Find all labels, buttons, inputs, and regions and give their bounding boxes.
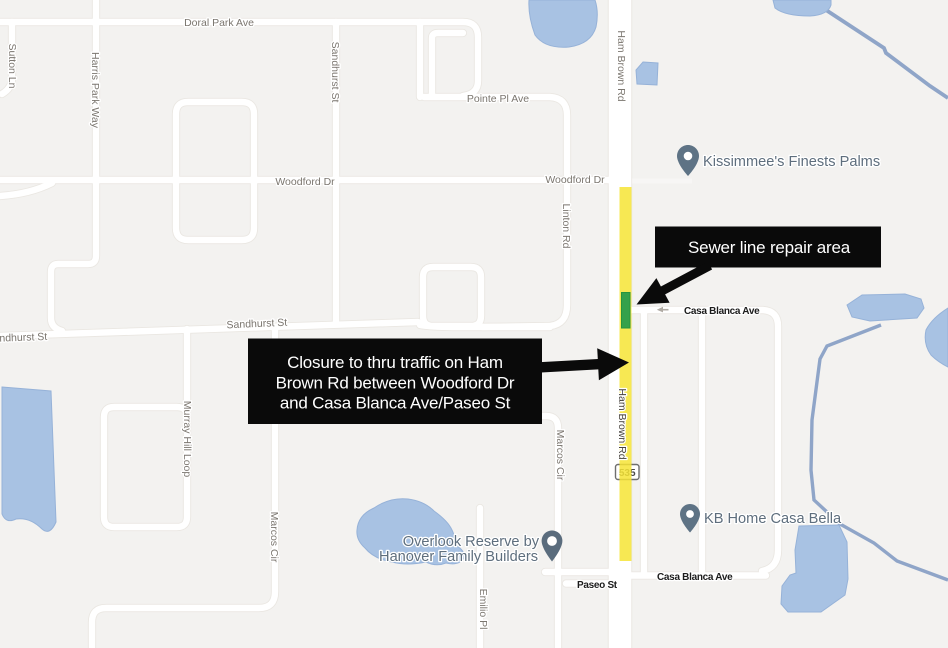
svg-text:Woodford Dr: Woodford Dr (275, 176, 335, 188)
svg-text:Linton Rd: Linton Rd (560, 204, 572, 249)
svg-text:Marcos Cir: Marcos Cir (268, 512, 280, 563)
svg-text:Harris Park Way: Harris Park Way (89, 52, 101, 129)
svg-text:Doral Park Ave: Doral Park Ave (184, 17, 254, 29)
svg-text:Ham Brown Rd: Ham Brown Rd (615, 30, 627, 101)
svg-text:Brown Rd between Woodford Dr: Brown Rd between Woodford Dr (276, 374, 515, 393)
svg-text:Pointe Pl Ave: Pointe Pl Ave (467, 93, 529, 105)
svg-text:KB Home Casa Bella: KB Home Casa Bella (704, 511, 842, 527)
svg-text:Closure to thru traffic on Ham: Closure to thru traffic on Ham (287, 353, 503, 372)
svg-text:Kissimmee's Finests Palms: Kissimmee's Finests Palms (703, 154, 880, 170)
svg-text:Woodford Dr: Woodford Dr (545, 174, 605, 186)
svg-text:and Casa Blanca Ave/Paseo St: and Casa Blanca Ave/Paseo St (280, 394, 511, 413)
svg-text:Ham Brown Rd: Ham Brown Rd (616, 388, 628, 459)
svg-text:Murray Hill Loop: Murray Hill Loop (181, 401, 193, 478)
svg-text:Sewer line repair area: Sewer line repair area (688, 238, 851, 257)
svg-text:Casa Blanca Ave: Casa Blanca Ave (684, 306, 760, 317)
svg-text:Paseo St: Paseo St (577, 580, 618, 591)
svg-text:Emilio Pl: Emilio Pl (477, 589, 489, 630)
svg-text:Marcos Cir: Marcos Cir (554, 430, 566, 481)
svg-text:Hanover Family Builders: Hanover Family Builders (379, 549, 538, 565)
svg-text:Sandhurst St: Sandhurst St (329, 42, 341, 103)
svg-text:Sandhurst St: Sandhurst St (0, 331, 48, 345)
svg-text:Sutton Ln: Sutton Ln (6, 44, 18, 89)
svg-text:Overlook Reserve by: Overlook Reserve by (403, 534, 540, 550)
svg-text:Casa Blanca Ave: Casa Blanca Ave (657, 572, 733, 583)
